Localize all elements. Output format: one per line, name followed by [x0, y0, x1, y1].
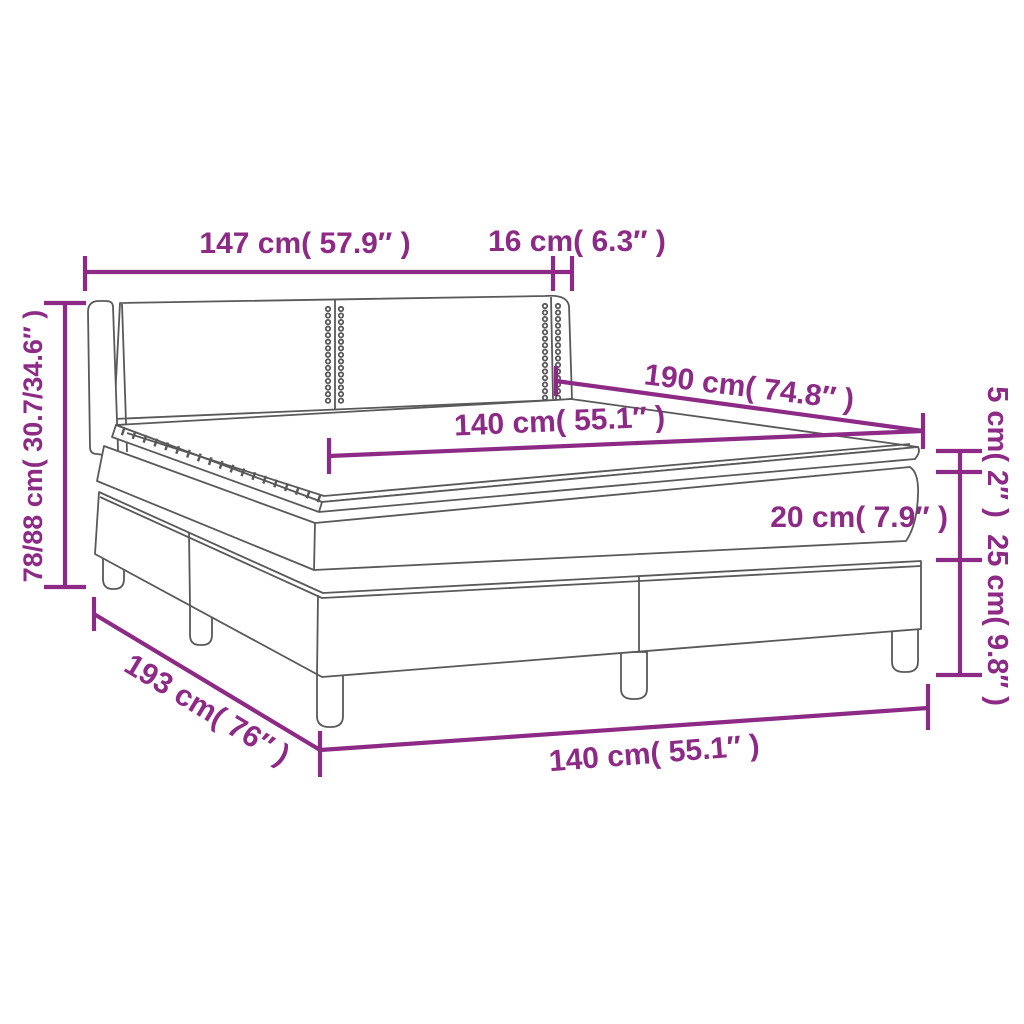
stud-icon: [339, 392, 343, 396]
stud-icon: [543, 337, 547, 341]
stud-icon: [556, 350, 560, 354]
stud-icon: [543, 363, 547, 367]
stud-icon: [339, 346, 343, 350]
stud-icon: [326, 326, 330, 330]
mattress-corner-line: [314, 523, 315, 570]
stud-icon: [556, 323, 560, 327]
stud-icon: [339, 340, 343, 344]
dim-label-total-height: 78/88 cm( 30.7/34.6″ ): [18, 310, 48, 583]
dim-label-topper-height: 5 cm( 2″ ): [981, 386, 1013, 518]
stud-icon: [543, 323, 547, 327]
stud-icon: [543, 382, 547, 386]
stud-icon: [339, 359, 343, 363]
stud-icon: [339, 385, 343, 389]
dim-label-wing-depth: 16 cm( 6.3″ ): [488, 225, 666, 258]
leg-foot-right: [892, 629, 918, 672]
stud-icon: [339, 379, 343, 383]
stud-icon: [326, 392, 330, 396]
leg-front-corner: [317, 675, 343, 727]
stud-icon: [543, 376, 547, 380]
stud-icon: [339, 333, 343, 337]
dim-label-headboard-width: 147 cm( 57.9″ ): [199, 227, 410, 260]
stud-icon: [339, 326, 343, 330]
dim-label-frame-width: 140 cm( 55.1″ ): [548, 729, 761, 778]
stud-icon: [543, 396, 547, 400]
stud-icon: [326, 366, 330, 370]
dim-label-base-height: 25 cm( 9.8″ ): [981, 534, 1013, 706]
stud-icon: [543, 317, 547, 321]
stud-icon: [543, 389, 547, 393]
stud-icon: [543, 330, 547, 334]
stud-icon: [556, 304, 560, 308]
stud-icon: [326, 399, 330, 403]
stud-icon: [339, 307, 343, 311]
stud-icon: [556, 343, 560, 347]
stud-icon: [339, 399, 343, 403]
leg-foot-middle: [621, 652, 647, 699]
stud-icon: [556, 330, 560, 334]
stud-icon: [556, 317, 560, 321]
stud-icon: [326, 372, 330, 376]
stud-icon: [326, 320, 330, 324]
stud-icon: [326, 385, 330, 389]
stud-icon: [326, 333, 330, 337]
dim-label-mattress-height: 20 cm( 7.9″ ): [770, 501, 948, 534]
stud-icon: [326, 307, 330, 311]
stud-icon: [543, 310, 547, 314]
stud-icon: [339, 372, 343, 376]
base-box-corner-line: [317, 595, 318, 675]
bed-dimension-drawing: 147 cm( 57.9″ ) 16 cm( 6.3″ ) 78/88 cm( …: [0, 0, 1024, 1024]
dim-label-frame-length: 193 cm( 76″ ): [119, 648, 296, 772]
stud-icon: [543, 356, 547, 360]
stud-icon: [556, 356, 560, 360]
stud-icon: [339, 313, 343, 317]
stud-icon: [339, 320, 343, 324]
stud-icon: [556, 310, 560, 314]
stud-icon: [326, 313, 330, 317]
stud-icon: [326, 379, 330, 383]
stud-icon: [326, 353, 330, 357]
dimension-diagram: 147 cm( 57.9″ ) 16 cm( 6.3″ ) 78/88 cm( …: [0, 0, 1024, 1024]
stud-icon: [543, 369, 547, 373]
stud-icon: [543, 343, 547, 347]
stud-icon: [326, 346, 330, 350]
stud-icon: [326, 359, 330, 363]
stud-icon: [543, 304, 547, 308]
base-box-front-seam: [189, 532, 190, 605]
stud-icon: [339, 366, 343, 370]
stud-icon: [326, 340, 330, 344]
stud-icon: [339, 353, 343, 357]
stud-icon: [543, 350, 547, 354]
stud-icon: [556, 337, 560, 341]
